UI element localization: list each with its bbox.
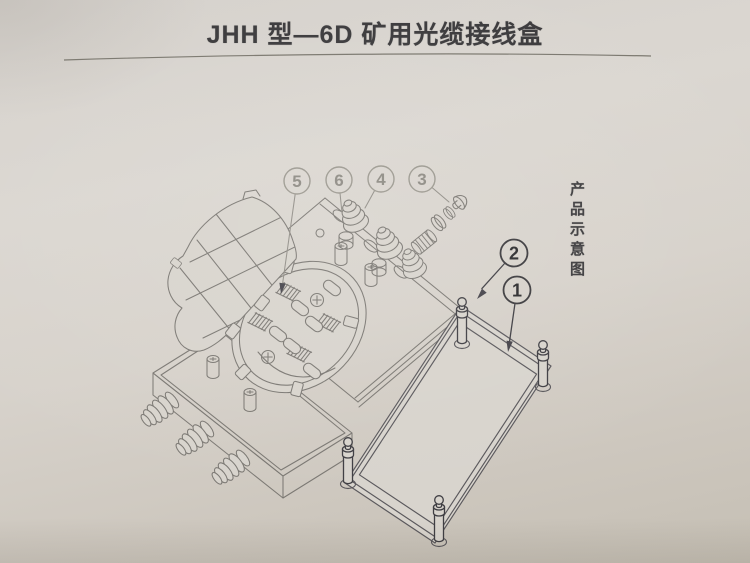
base-cover-plate bbox=[341, 306, 552, 547]
standoff-post bbox=[335, 243, 347, 266]
gland-exploded-parts bbox=[410, 192, 471, 256]
svg-text:5: 5 bbox=[292, 172, 301, 191]
cable-gland bbox=[335, 196, 371, 236]
callout-6: 6 bbox=[326, 167, 352, 193]
cable-knob bbox=[172, 418, 217, 460]
callout-3: 3 bbox=[409, 166, 435, 192]
callout-4: 4 bbox=[368, 166, 394, 192]
svg-text:2: 2 bbox=[509, 244, 519, 264]
corner-bolt bbox=[538, 341, 549, 387]
svg-text:3: 3 bbox=[417, 170, 426, 189]
leader-line-1 bbox=[510, 303, 515, 341]
corner-bolt bbox=[434, 496, 445, 542]
leader-line-4 bbox=[365, 190, 375, 208]
cable-gland-set bbox=[335, 192, 470, 282]
leader-line-2 bbox=[482, 263, 505, 289]
callout-2: 2 bbox=[501, 240, 528, 267]
standoff-post bbox=[244, 389, 256, 412]
product-schematic-caption: 产品示意图 bbox=[566, 181, 587, 291]
svg-text:1: 1 bbox=[512, 281, 522, 301]
title-underline bbox=[64, 54, 651, 60]
leader-line-3 bbox=[432, 188, 449, 203]
callout-1: 1 bbox=[504, 277, 531, 304]
tray-screw bbox=[311, 294, 324, 307]
leader-arrow-2 bbox=[477, 289, 487, 299]
tray-screw bbox=[262, 351, 275, 364]
corner-bolt bbox=[343, 438, 354, 484]
callout-5: 5 bbox=[284, 168, 310, 194]
corner-bolt bbox=[457, 298, 468, 344]
photographed-document-page: JHH 型—6D 矿用光缆接线盒 bbox=[0, 0, 750, 563]
cable-knob bbox=[137, 389, 182, 431]
svg-text:4: 4 bbox=[376, 170, 386, 189]
standoff-post bbox=[207, 356, 219, 379]
svg-text:6: 6 bbox=[334, 171, 343, 190]
cable-knob bbox=[208, 447, 253, 489]
exploded-view-diagram: 5 6 4 3 2 1 bbox=[0, 0, 750, 563]
